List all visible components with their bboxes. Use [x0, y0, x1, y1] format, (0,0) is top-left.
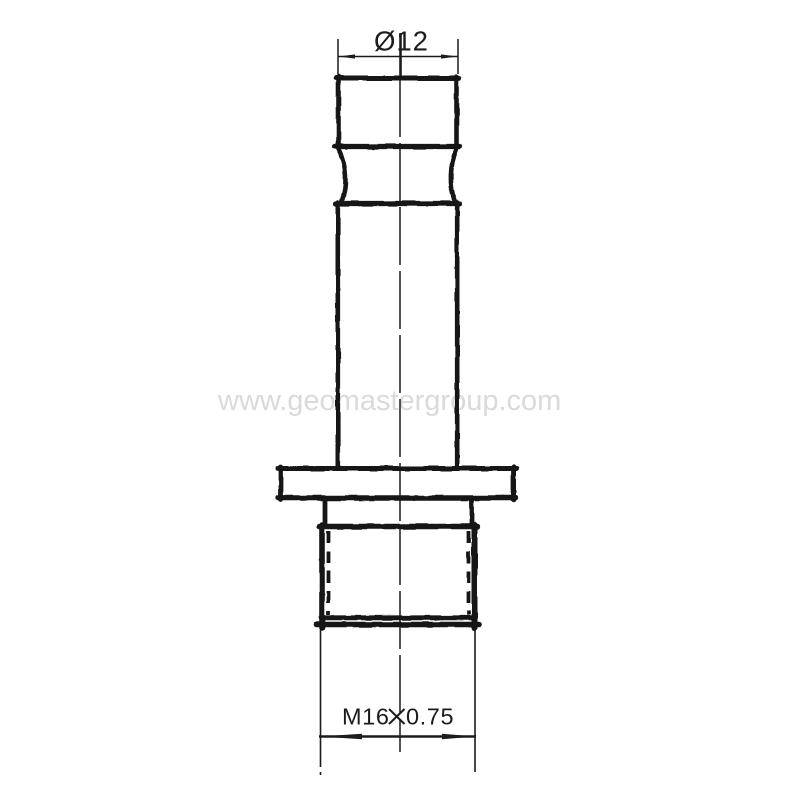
svg-text:M16: M16 — [342, 704, 390, 730]
svg-text:0.75: 0.75 — [406, 704, 454, 730]
svg-text:Ø12: Ø12 — [374, 26, 429, 57]
svg-text:www.geomastergroup.com: www.geomastergroup.com — [217, 385, 561, 417]
